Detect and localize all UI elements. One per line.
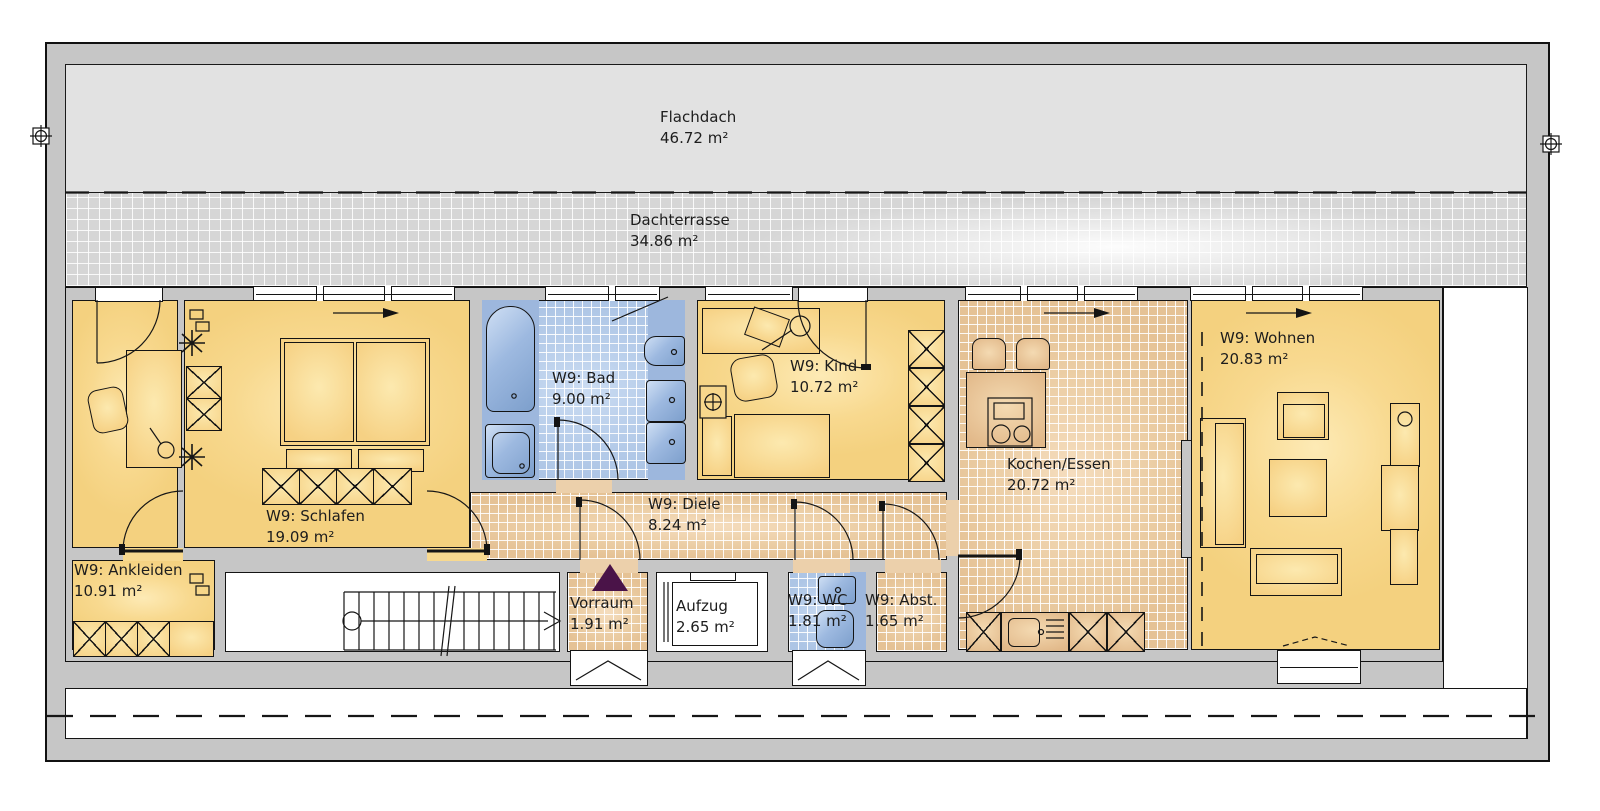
entrance-vorraum [570,650,648,686]
kitchen-island [966,372,1046,448]
room-label-bad: W9: Bad9.00 m² [552,368,615,410]
room-label-flachdach: Flachdach46.72 m² [660,107,736,149]
side-strip-right [1443,287,1528,739]
room-label-dachterrasse: Dachterrasse34.86 m² [630,210,730,252]
ankleiden-wardrobe [73,621,106,657]
room-label-vorraum: Vorraum1.91 m² [570,593,634,635]
door-gap-abst [885,559,941,573]
room-label-kind: W9: Kind10.72 m² [790,356,858,398]
kitchen-chair [972,338,1006,370]
terrace-door-kind [798,287,868,302]
door-gap-kochen [946,500,959,556]
room-label-wc: W9: WC1.81 m² [788,590,848,632]
room-label-diele: W9: Diele8.24 m² [648,494,721,536]
floor-plan: Flachdach46.72 m² Dachterrasse34.86 m² W… [0,0,1600,811]
bottom-strip [65,688,1527,739]
kitchen-counter [966,612,1001,652]
tv-sideboard [1390,403,1420,467]
door-gap-bad [556,480,612,493]
window-wohnen-top [1190,286,1363,301]
entrance-wc-side [792,650,866,686]
window-schlafen [253,286,455,301]
window-kochen [965,286,1138,301]
schlafen-wardrobe [262,468,300,505]
door-gap-schlafen [427,548,487,561]
entry-triangle-icon [592,564,628,591]
coffee-table [1269,459,1327,517]
kind-wardrobe [908,330,945,368]
wall-stub-kochen-wohnen [1181,440,1192,558]
door-gap-wc [793,559,850,573]
room-dachterrasse [65,192,1527,287]
kind-chair [729,353,780,404]
room-label-abst: W9: Abst.1.65 m² [865,590,937,632]
stairwell [225,572,560,652]
terrace-door-ankleiden [95,287,163,302]
window-kind [705,286,793,301]
washbasin-double [646,380,686,422]
toilet-bad [644,336,685,366]
room-label-ankleiden: W9: Ankleiden10.91 m² [74,560,182,602]
room-flachdach [65,64,1527,193]
room-label-wohnen: W9: Wohnen20.83 m² [1220,328,1315,370]
room-label-aufzug: Aufzug2.65 m² [676,596,735,638]
kind-bed [702,416,732,476]
schlafen-shelf [186,366,222,399]
ankleiden-desk [126,350,182,468]
room-label-schlafen: W9: Schlafen19.09 m² [266,506,365,548]
room-label-kochen-essen: Kochen/Essen20.72 m² [1007,454,1111,496]
elevator-door [690,572,736,581]
window-wohnen-bottom [1277,650,1361,684]
kitchen-sink [1008,618,1040,647]
bathtub [486,306,535,412]
window-bad [545,286,660,301]
